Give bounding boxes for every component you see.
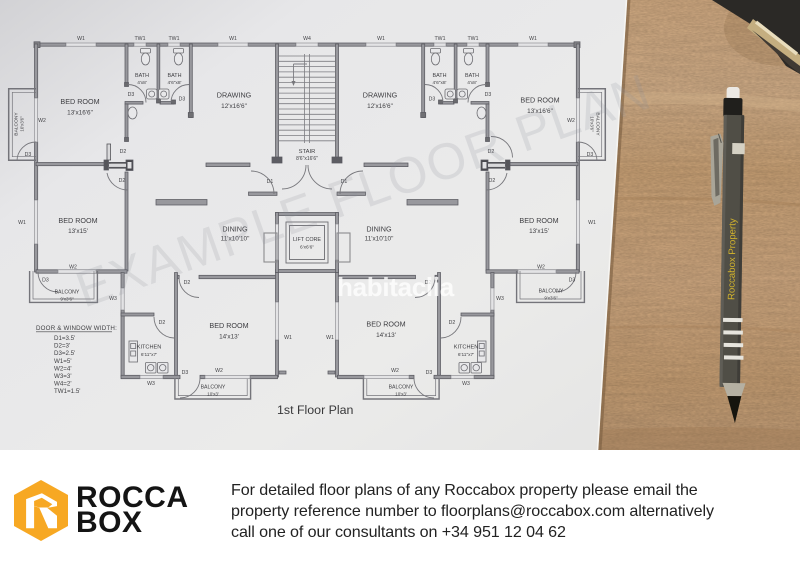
svg-text:11'x10'10": 11'x10'10" bbox=[365, 236, 394, 243]
svg-text:9'x3'6": 9'x3'6" bbox=[60, 296, 74, 301]
svg-text:13'x16'6": 13'x16'6" bbox=[67, 110, 93, 117]
svg-text:13'x15': 13'x15' bbox=[68, 228, 88, 235]
svg-text:DRAWING: DRAWING bbox=[363, 91, 398, 100]
svg-text:BALCONY: BALCONY bbox=[539, 289, 564, 295]
svg-text:W2: W2 bbox=[391, 368, 399, 374]
svg-text:BALCONY: BALCONY bbox=[201, 385, 226, 391]
svg-text:D2: D2 bbox=[119, 178, 126, 184]
svg-text:W1: W1 bbox=[588, 220, 596, 226]
svg-text:D3: D3 bbox=[426, 370, 433, 376]
svg-text:W1: W1 bbox=[77, 36, 85, 42]
svg-text:BED ROOM: BED ROOM bbox=[519, 216, 558, 225]
svg-text:W1=5': W1=5' bbox=[54, 358, 72, 365]
svg-text:D3: D3 bbox=[25, 152, 32, 158]
svg-text:W2=4': W2=4' bbox=[54, 365, 72, 372]
svg-text:13'x15': 13'x15' bbox=[529, 228, 549, 235]
svg-text:BED ROOM: BED ROOM bbox=[58, 216, 97, 225]
svg-text:4'6"x8': 4'6"x8' bbox=[433, 80, 447, 86]
svg-text:W1: W1 bbox=[284, 335, 292, 341]
svg-text:BATH: BATH bbox=[433, 73, 447, 79]
svg-text:W2: W2 bbox=[38, 118, 46, 124]
svg-text:BED ROOM: BED ROOM bbox=[366, 320, 405, 329]
svg-text:D2: D2 bbox=[159, 320, 166, 326]
svg-text:W3=3': W3=3' bbox=[54, 373, 72, 380]
svg-text:D3: D3 bbox=[182, 370, 189, 376]
svg-text:10'x3'6": 10'x3'6" bbox=[20, 116, 25, 132]
svg-text:W1: W1 bbox=[18, 220, 26, 226]
svg-text:D2=3': D2=3' bbox=[54, 343, 70, 350]
svg-text:DINING: DINING bbox=[366, 225, 392, 234]
svg-text:BALCONY: BALCONY bbox=[389, 385, 414, 391]
svg-text:6'11"x7': 6'11"x7' bbox=[458, 352, 474, 358]
svg-text:KITCHEN: KITCHEN bbox=[454, 345, 479, 351]
svg-text:BATH: BATH bbox=[135, 73, 149, 79]
svg-text:D3: D3 bbox=[587, 152, 594, 158]
svg-text:8'6"x16'6": 8'6"x16'6" bbox=[296, 156, 318, 162]
svg-text:STAIR: STAIR bbox=[299, 149, 316, 155]
svg-text:TW1: TW1 bbox=[169, 36, 180, 42]
svg-text:BED ROOM: BED ROOM bbox=[209, 321, 248, 330]
svg-text:9'x3'6": 9'x3'6" bbox=[544, 296, 558, 301]
svg-text:BATH: BATH bbox=[465, 73, 479, 79]
svg-text:D2: D2 bbox=[449, 320, 456, 326]
svg-text:D3: D3 bbox=[429, 97, 436, 103]
svg-text:D2: D2 bbox=[120, 149, 127, 155]
svg-text:4'x8': 4'x8' bbox=[467, 80, 477, 86]
svg-text:D1: D1 bbox=[267, 179, 274, 185]
svg-text:D2: D2 bbox=[489, 178, 496, 184]
svg-text:W3: W3 bbox=[462, 381, 470, 387]
svg-text:4'x8': 4'x8' bbox=[137, 80, 147, 86]
svg-text:6'11"x7': 6'11"x7' bbox=[141, 352, 157, 358]
svg-text:4'6"x8': 4'6"x8' bbox=[168, 80, 182, 86]
svg-text:TW1: TW1 bbox=[435, 36, 446, 42]
svg-text:KITCHEN: KITCHEN bbox=[137, 345, 162, 351]
svg-text:D3: D3 bbox=[42, 278, 49, 284]
svg-text:TW1: TW1 bbox=[135, 36, 146, 42]
svg-text:10'x3': 10'x3' bbox=[207, 392, 219, 397]
svg-text:D3: D3 bbox=[179, 97, 186, 103]
svg-text:habitaclia: habitaclia bbox=[337, 272, 455, 302]
svg-text:TW1: TW1 bbox=[468, 36, 479, 42]
svg-text:W4: W4 bbox=[303, 36, 311, 42]
svg-text:BATH: BATH bbox=[168, 73, 182, 79]
svg-text:W3: W3 bbox=[496, 296, 504, 302]
svg-text:1st Floor Plan: 1st Floor Plan bbox=[277, 403, 354, 417]
svg-text:Roccabox Property: Roccabox Property bbox=[726, 218, 738, 300]
svg-text:D1=3.5': D1=3.5' bbox=[54, 335, 75, 342]
svg-text:W1: W1 bbox=[229, 36, 237, 42]
svg-text:14'x13': 14'x13' bbox=[376, 332, 396, 339]
svg-text:DRAWING: DRAWING bbox=[217, 91, 252, 100]
svg-text:D3: D3 bbox=[485, 92, 492, 98]
svg-text:W4=2': W4=2' bbox=[54, 381, 72, 388]
svg-text:10'x3': 10'x3' bbox=[395, 392, 407, 397]
svg-text:W2: W2 bbox=[537, 265, 545, 271]
svg-text:W2: W2 bbox=[215, 368, 223, 374]
svg-text:D3=2.5': D3=2.5' bbox=[54, 350, 75, 357]
svg-text:D3: D3 bbox=[569, 278, 576, 284]
svg-text:W3: W3 bbox=[147, 381, 155, 387]
svg-text:W1: W1 bbox=[529, 36, 537, 42]
svg-text:14'x13': 14'x13' bbox=[219, 334, 239, 341]
svg-text:D3: D3 bbox=[128, 92, 135, 98]
svg-text:TW1=1.5': TW1=1.5' bbox=[54, 388, 80, 395]
svg-text:12'x16'6": 12'x16'6" bbox=[367, 103, 393, 110]
svg-text:W1: W1 bbox=[326, 335, 334, 341]
svg-text:6'x6'6": 6'x6'6" bbox=[300, 245, 314, 251]
svg-text:12'x16'6": 12'x16'6" bbox=[221, 103, 247, 110]
svg-text:BALCONY: BALCONY bbox=[55, 290, 80, 296]
svg-text:BED ROOM: BED ROOM bbox=[60, 97, 99, 106]
svg-text:DOOR & WINDOW WIDTH:: DOOR & WINDOW WIDTH: bbox=[36, 325, 117, 332]
svg-text:W1: W1 bbox=[377, 36, 385, 42]
